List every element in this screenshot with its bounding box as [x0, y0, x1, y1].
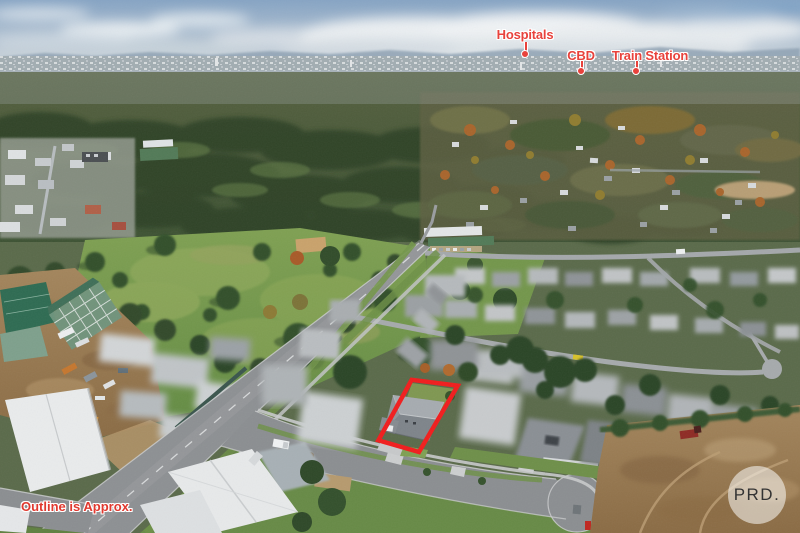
- prd-logo: PRD.: [728, 466, 786, 524]
- outline-disclaimer: Outline is Approx.: [21, 499, 132, 514]
- aerial-listing-photo: Hospitals CBD Train Station Outline is A…: [0, 0, 800, 533]
- hospitals-label: Hospitals: [497, 27, 554, 42]
- aerial-photo-art: [0, 0, 800, 533]
- train-station-label: Train Station: [612, 48, 688, 63]
- prd-logo-text: PRD.: [734, 485, 781, 505]
- photo-grain: [0, 0, 800, 533]
